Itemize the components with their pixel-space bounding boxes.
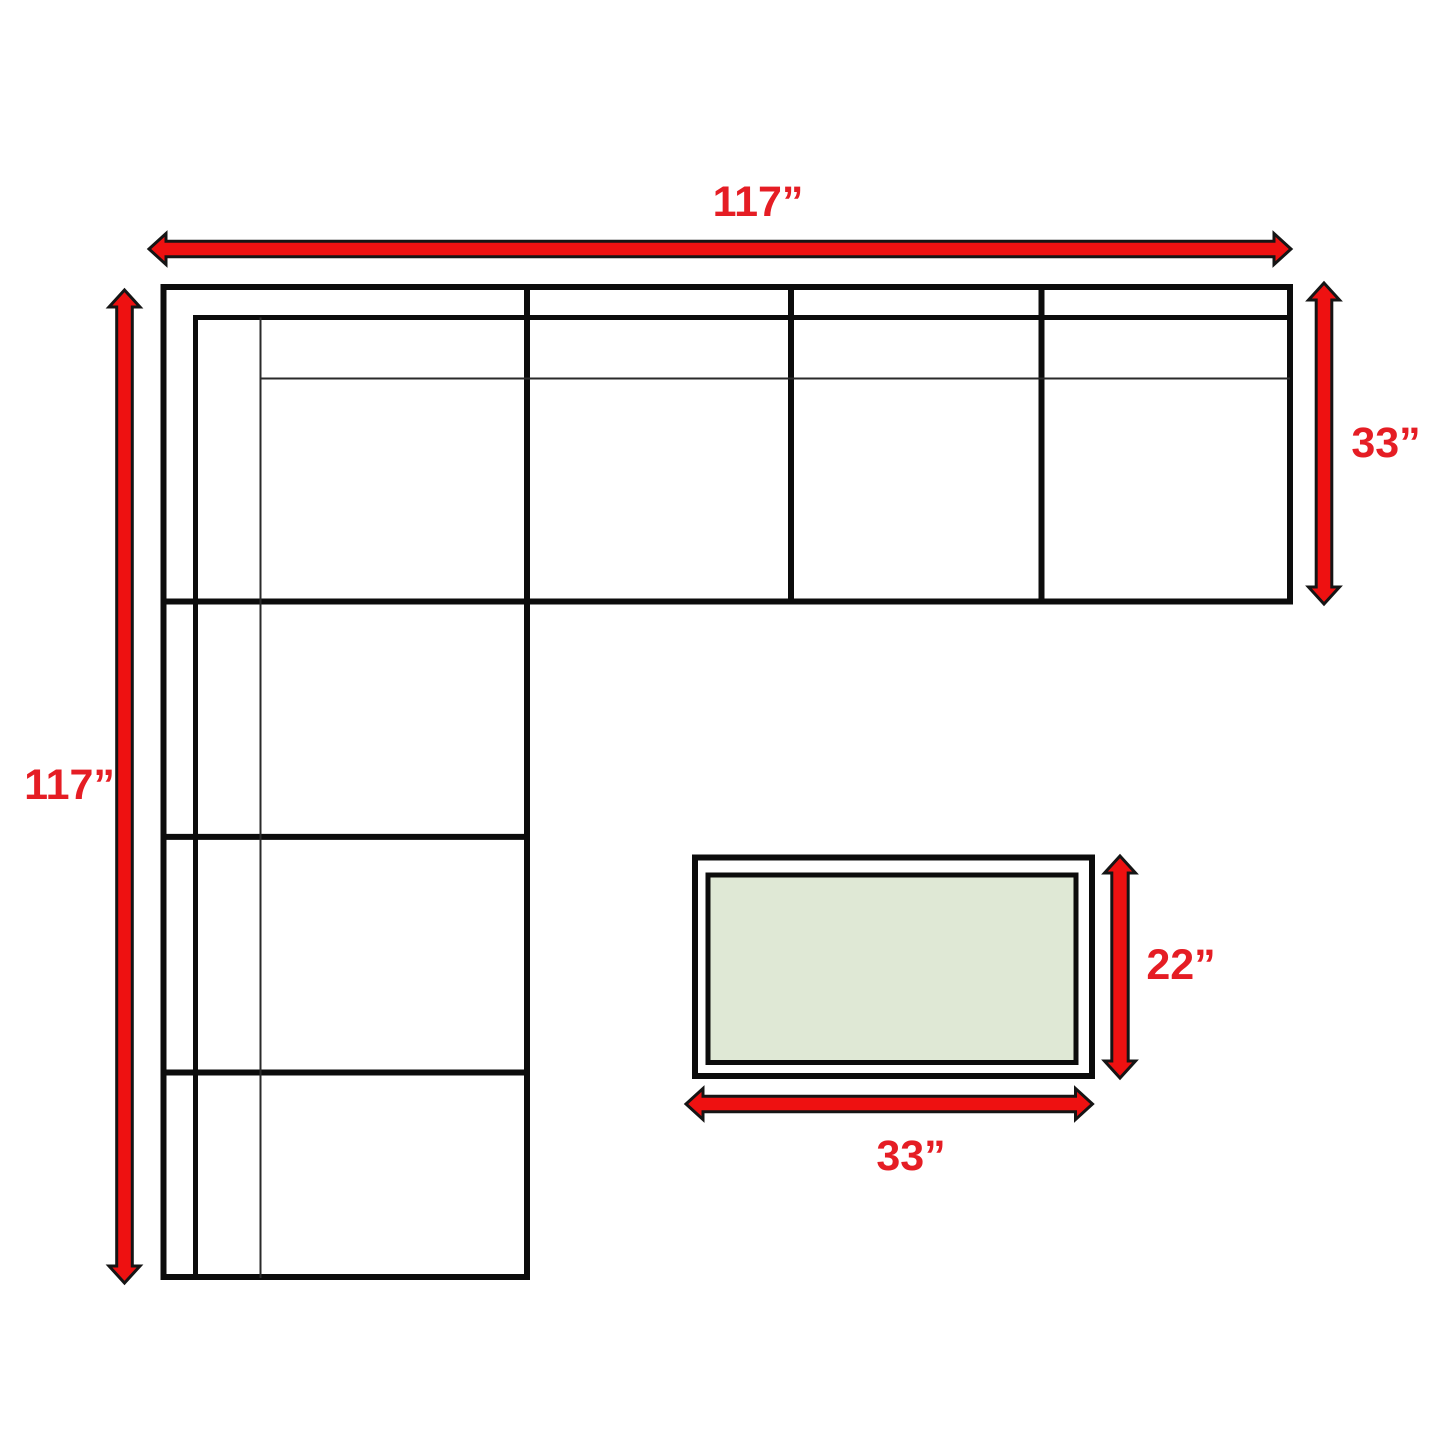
svg-text:22”: 22” [1146, 941, 1215, 989]
svg-text:33”: 33” [1351, 419, 1420, 467]
svg-text:33”: 33” [876, 1132, 945, 1180]
svg-text:117”: 117” [713, 178, 804, 226]
svg-text:117”: 117” [24, 761, 115, 809]
